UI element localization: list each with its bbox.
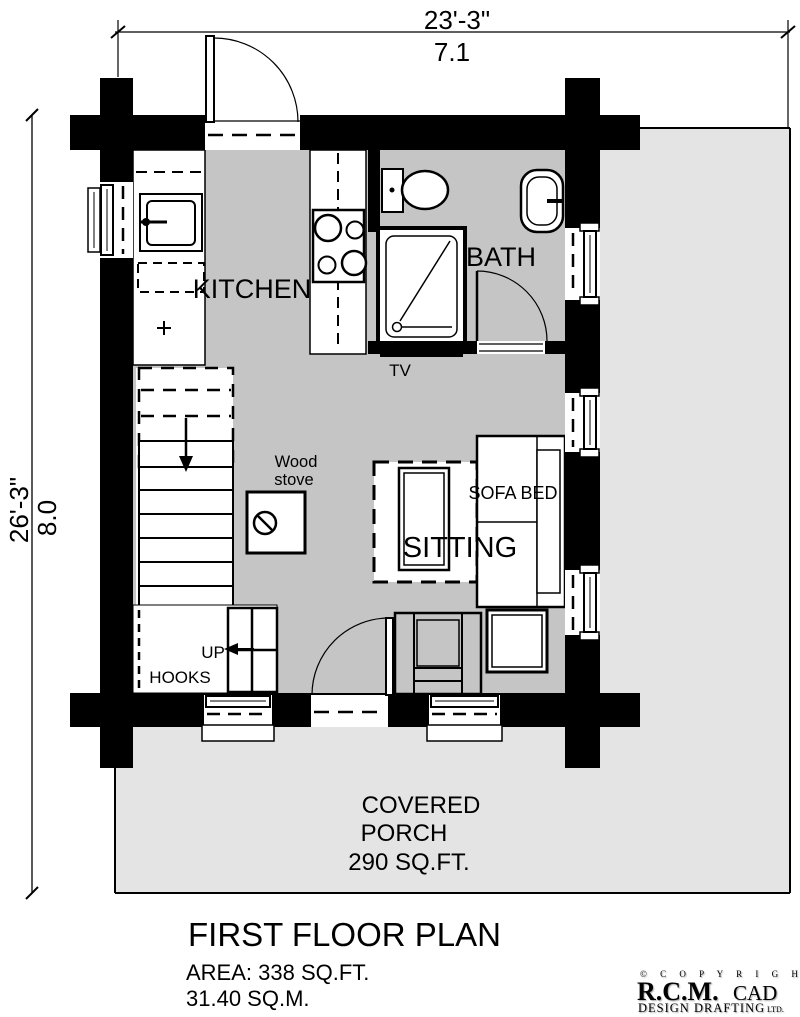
door-swing-arc — [214, 38, 298, 122]
title-block: FIRST FLOOR PLAN AREA: 338 SQ.FT. 31.40 … — [186, 916, 501, 1011]
plan-title: FIRST FLOOR PLAN — [188, 916, 501, 953]
porch-label-line2: PORCH — [361, 820, 448, 847]
up-label: UP — [201, 643, 225, 662]
stove-burner — [342, 251, 366, 275]
stove-burner — [315, 215, 341, 241]
south-window-left — [202, 695, 274, 741]
copyright-logo: © C O P Y R I G H T R.C.M. CAD DESIGN DR… — [637, 969, 800, 1015]
east-window-3 — [565, 565, 600, 640]
north-entry-door — [205, 36, 300, 150]
bath-label: BATH — [466, 242, 536, 272]
width-dimension-imperial: 23'-3" — [424, 5, 490, 35]
door-leaf — [386, 618, 393, 695]
side-table — [487, 610, 547, 672]
plan-area-metric: 31.40 SQ.M. — [186, 986, 310, 1011]
plan-area-imperial: AREA: 338 SQ.FT. — [186, 960, 369, 985]
shower — [378, 228, 465, 345]
west-wall — [100, 78, 133, 768]
east-window-1 — [565, 223, 600, 305]
shower-drain — [393, 323, 402, 332]
toilet — [382, 169, 448, 212]
tv-unit — [380, 346, 463, 357]
floor-plan-drawing: 23'-3" 7.1 26'-3" 8.0 KITCHEN BATH SITTI… — [0, 0, 800, 1017]
porch-label-line1: COVERED — [362, 792, 481, 819]
height-dimension-imperial: 26'-3" — [4, 477, 34, 543]
kitchen-label: KITCHEN — [193, 274, 312, 304]
sitting-label: SITTING — [403, 532, 517, 564]
bath-sink — [521, 170, 563, 232]
west-window — [88, 182, 133, 258]
staircase — [136, 368, 233, 610]
south-window-right — [427, 695, 502, 741]
kitchen-stove-counter — [310, 150, 366, 354]
hooks-label: HOOKS — [149, 668, 210, 687]
sitting-area — [374, 436, 565, 694]
company-ltd: LTD. — [767, 1005, 784, 1014]
armchair — [395, 613, 481, 694]
sofa-bed-label: SOFA BED — [468, 483, 557, 503]
kitchen-sink-counter — [133, 150, 205, 365]
width-dimension-metric: 7.1 — [434, 37, 470, 67]
porch-label-line3: 290 SQ.FT. — [348, 849, 469, 876]
stove-burner — [347, 222, 364, 239]
tv-label: TV — [389, 361, 411, 380]
wood-stove-label-line2: stove — [274, 471, 313, 489]
company-tagline: DESIGN DRAFTING — [638, 1001, 765, 1015]
floor-plan-page: 23'-3" 7.1 26'-3" 8.0 KITCHEN BATH SITTI… — [0, 0, 800, 1017]
door-leaf — [206, 36, 214, 122]
height-dimension-metric: 8.0 — [32, 500, 62, 536]
north-wall — [70, 115, 640, 150]
east-window-2 — [565, 388, 600, 457]
wood-stove — [247, 492, 305, 553]
dimension-left: 26'-3" 8.0 — [4, 109, 62, 899]
stove-burner — [319, 257, 336, 274]
wood-stove-label-line1: Wood — [275, 453, 318, 471]
sofa-bed — [477, 436, 565, 607]
